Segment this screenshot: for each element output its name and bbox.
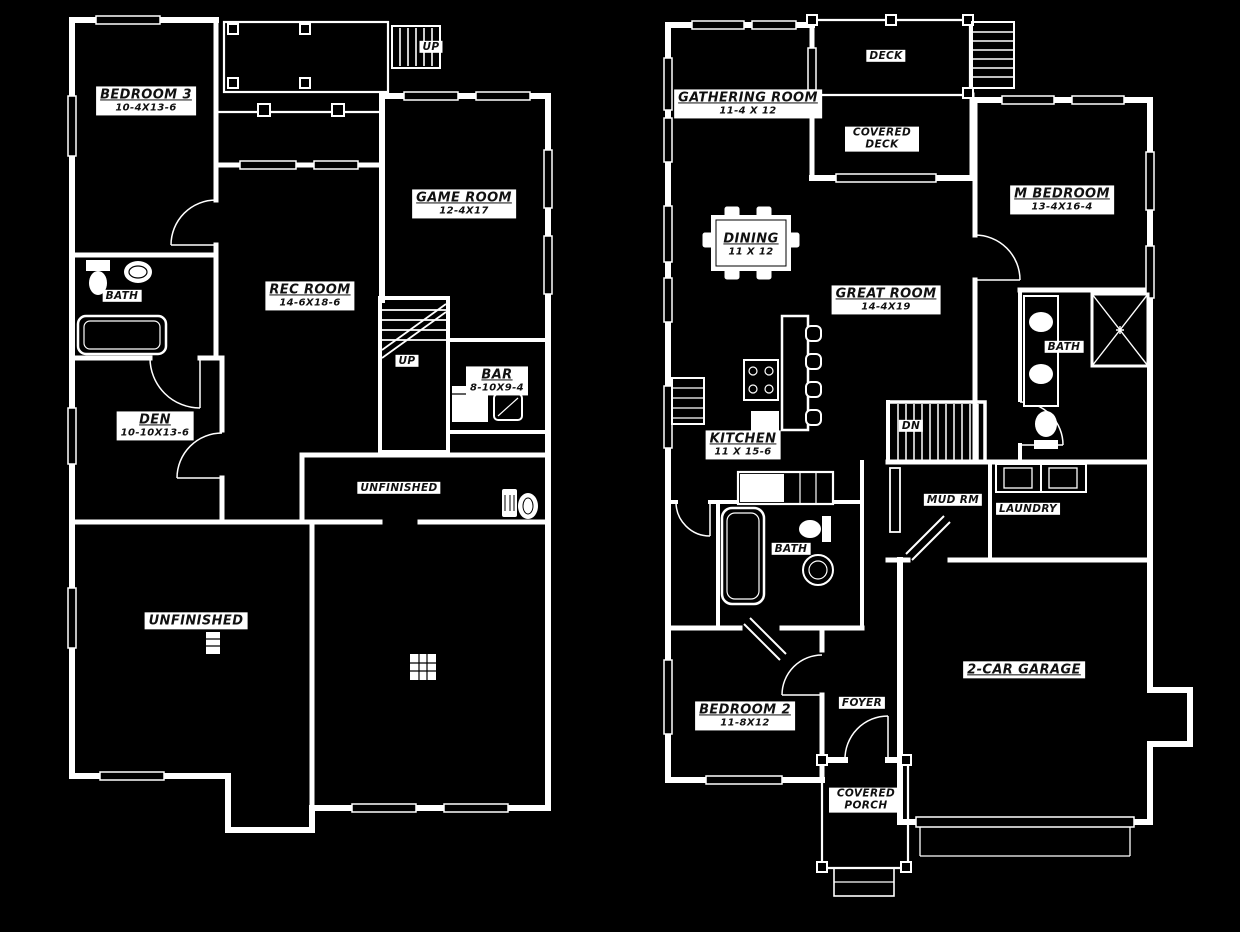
room-name: UNFINISHED	[360, 482, 437, 494]
room-label-gathering-room: GATHERING ROOM 11-4 X 12	[674, 89, 822, 118]
room-name: BAR	[470, 367, 524, 382]
room-label-game-room: GAME ROOM 12-4X17	[412, 189, 516, 218]
stair-label-up-basement: UP	[395, 355, 418, 367]
room-name: BEDROOM 2	[699, 702, 791, 717]
room-name: KITCHEN	[710, 431, 777, 446]
room-label-den: DEN 10-10X13-6	[117, 411, 194, 440]
room-label-bedroom-2: BEDROOM 2 11-8X12	[695, 701, 795, 730]
room-name: UNFINISHED	[149, 613, 244, 628]
stair-label-dn: DN	[899, 420, 923, 432]
garage-door-icon	[916, 817, 1134, 856]
support-column-icon	[206, 632, 436, 680]
room-name: GAME ROOM	[416, 190, 512, 205]
porch-structure	[817, 755, 911, 896]
room-name: BATH	[1048, 341, 1081, 353]
pedestal-sink-icon	[124, 261, 152, 283]
stairs-icon	[380, 298, 448, 452]
dishwasher-icon	[494, 394, 522, 420]
main-bath-fixtures	[722, 508, 833, 604]
deck-post-icon	[817, 755, 911, 872]
room-label-bath-main: BATH	[772, 543, 811, 555]
room-label-mud-rm: MUD RM	[924, 494, 982, 506]
room-dims: 12-4X17	[416, 206, 512, 218]
bathtub-icon	[722, 508, 764, 604]
room-label-m-bedroom: M BEDROOM 13-4X16-4	[1010, 185, 1114, 214]
room-label-kitchen: KITCHEN 11 X 15-6	[706, 430, 781, 459]
room-dims: 11 X 15-6	[710, 447, 777, 459]
toilet-icon	[1034, 411, 1058, 449]
room-dims: 8-10X9-4	[470, 383, 524, 395]
furnace-icon	[502, 489, 517, 517]
master-bath-fixtures	[1024, 294, 1148, 449]
deck-and-patio	[216, 22, 440, 116]
pantry-shelves-icon	[672, 378, 704, 424]
room-dims: 10-10X13-6	[121, 428, 190, 440]
room-name: FOYER	[842, 697, 882, 709]
deck-post-icon	[228, 24, 344, 116]
room-dims: 11-4 X 12	[678, 106, 818, 118]
floor-plan-drawing	[0, 0, 1240, 932]
room-label-garage: 2-CAR GARAGE	[963, 661, 1085, 678]
stairs-icon	[972, 22, 1014, 88]
room-dims: 14-6X18-6	[269, 298, 350, 310]
mechanical-fixtures	[206, 489, 538, 680]
room-name: GATHERING ROOM	[678, 90, 818, 105]
room-label-deck: DECK	[866, 50, 905, 62]
room-label-laundry: LAUNDRY	[996, 503, 1060, 515]
left-bath-fixtures	[78, 260, 166, 354]
room-name: REC ROOM	[269, 282, 350, 297]
room-label-bedroom-3: BEDROOM 3 10-4X13-6	[96, 86, 196, 115]
stair-direction: UP	[398, 355, 415, 367]
room-name: GREAT ROOM	[836, 286, 937, 301]
room-label-unfinished-1: UNFINISHED	[357, 482, 440, 494]
room-label-unfinished-2: UNFINISHED	[145, 612, 248, 629]
toilet-icon	[799, 516, 831, 542]
water-heater-icon	[518, 493, 538, 519]
stair-direction: DN	[902, 420, 920, 432]
room-dims: 11-8X12	[699, 718, 791, 730]
room-label-great-room: GREAT ROOM 14-4X19	[832, 285, 941, 314]
room-label-foyer: FOYER	[839, 697, 885, 709]
room-name: BATH	[775, 543, 808, 555]
floor-plan-page: BEDROOM 3 10-4X13-6 GAME ROOM 12-4X17 RE…	[0, 0, 1240, 932]
room-name: COVERED DECK	[848, 127, 916, 152]
room-label-covered-deck: COVERED DECK	[845, 127, 919, 152]
room-name: DINING	[723, 231, 778, 246]
room-dims: 13-4X16-4	[1014, 202, 1110, 214]
pedestal-sink-icon	[803, 555, 833, 585]
stair-label-up-deck: UP	[419, 41, 442, 53]
room-name: BEDROOM 3	[100, 87, 192, 102]
mud-bench	[890, 468, 900, 532]
kitchen-counter-icon	[738, 472, 833, 504]
room-label-dining: DINING 11 X 12	[719, 230, 782, 259]
room-label-bath-lower: BATH	[103, 290, 142, 302]
room-dims: 11 X 12	[723, 247, 778, 259]
room-dims: 14-4X19	[836, 302, 937, 314]
range-icon	[744, 360, 778, 400]
room-name: MUD RM	[927, 494, 979, 506]
deck-structure	[807, 15, 1014, 98]
stair-direction: UP	[422, 41, 439, 53]
room-label-bar: BAR 8-10X9-4	[466, 366, 528, 395]
room-name: M BEDROOM	[1014, 186, 1110, 201]
room-name: 2-CAR GARAGE	[967, 662, 1081, 677]
bathtub-icon	[78, 316, 166, 354]
room-dims: 10-4X13-6	[100, 103, 192, 115]
room-name: COVERED PORCH	[832, 788, 900, 813]
room-name: BATH	[106, 290, 139, 302]
room-label-bath-master: BATH	[1045, 341, 1084, 353]
room-label-covered-porch: COVERED PORCH	[829, 788, 903, 813]
room-name: DECK	[869, 50, 902, 62]
room-name: LAUNDRY	[999, 503, 1057, 515]
kitchen-fixtures	[672, 316, 833, 504]
kitchen-island-icon	[782, 316, 808, 430]
room-label-rec-room: REC ROOM 14-6X18-6	[265, 281, 354, 310]
room-name: DEN	[121, 412, 190, 427]
shower-icon	[1092, 294, 1148, 366]
